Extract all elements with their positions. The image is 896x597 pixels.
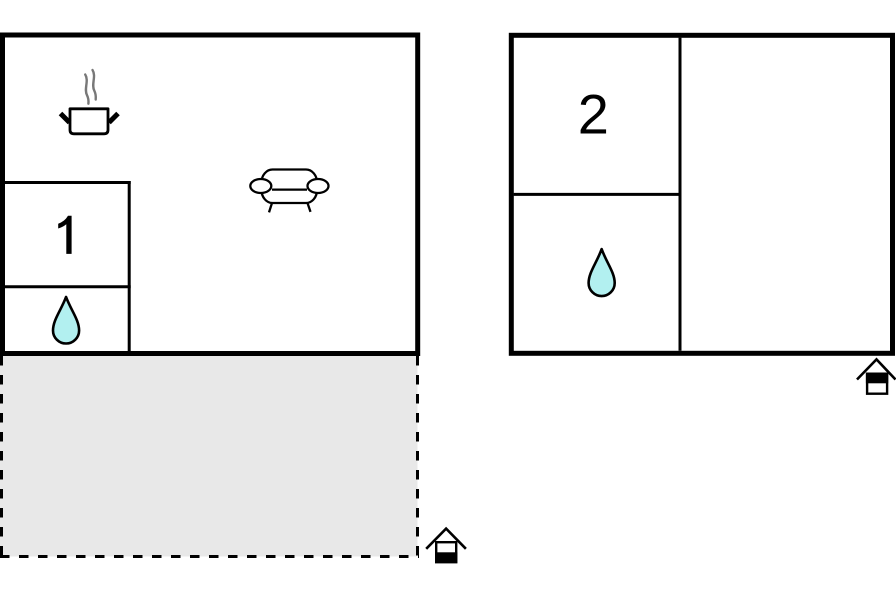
svg-text:2: 2 xyxy=(578,82,609,145)
